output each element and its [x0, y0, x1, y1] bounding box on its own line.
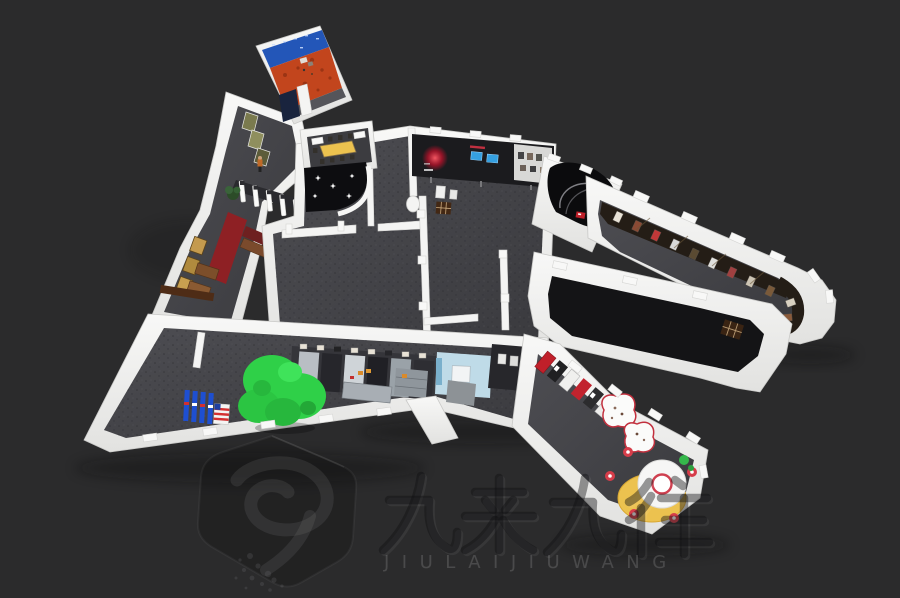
kiosk-stand — [450, 190, 458, 200]
interactive-machine — [452, 366, 471, 383]
kiosk-stand — [435, 186, 445, 199]
lobby-black-floor — [304, 162, 370, 214]
watermark-subtitle: JIULAIJIUWANG — [383, 552, 679, 573]
media-screen — [471, 152, 483, 161]
round-ottoman — [407, 196, 420, 212]
media-screen — [487, 154, 499, 163]
watermark-title-glyphs: 九来九往 — [383, 469, 711, 559]
flag-stand — [213, 404, 229, 425]
display-rack — [394, 368, 428, 398]
lattice-window — [436, 202, 452, 215]
scene-svg: 九来九往 JIULAIJIUWANG — [0, 0, 900, 598]
red-glow-graphic — [422, 145, 448, 171]
green-fruit-prop — [679, 455, 689, 465]
floorplan-render: 九来九往 JIULAIJIUWANG — [0, 0, 900, 598]
